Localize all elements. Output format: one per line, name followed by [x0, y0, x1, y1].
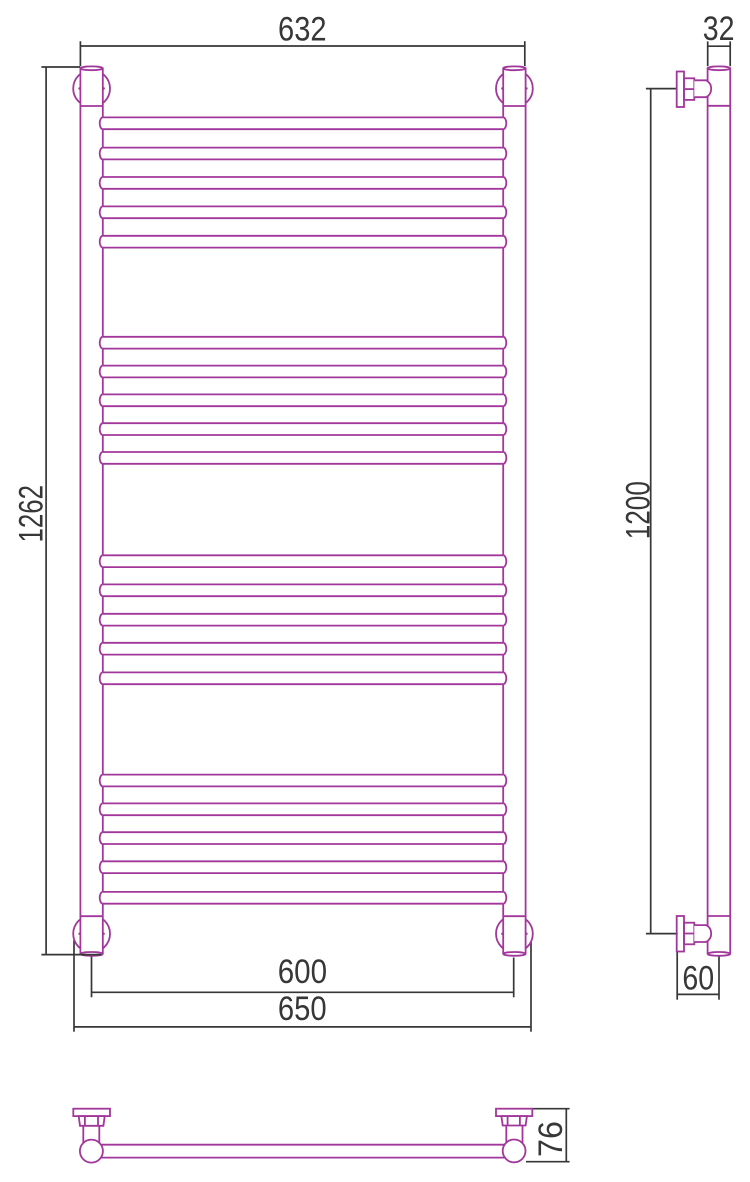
svg-text:32: 32	[703, 10, 735, 48]
svg-text:650: 650	[278, 989, 327, 1028]
svg-text:1262: 1262	[13, 485, 50, 542]
svg-text:76: 76	[532, 1121, 570, 1157]
svg-text:600: 600	[278, 952, 327, 990]
svg-text:1200: 1200	[620, 481, 657, 539]
svg-text:60: 60	[682, 959, 714, 997]
svg-text:632: 632	[278, 9, 326, 48]
